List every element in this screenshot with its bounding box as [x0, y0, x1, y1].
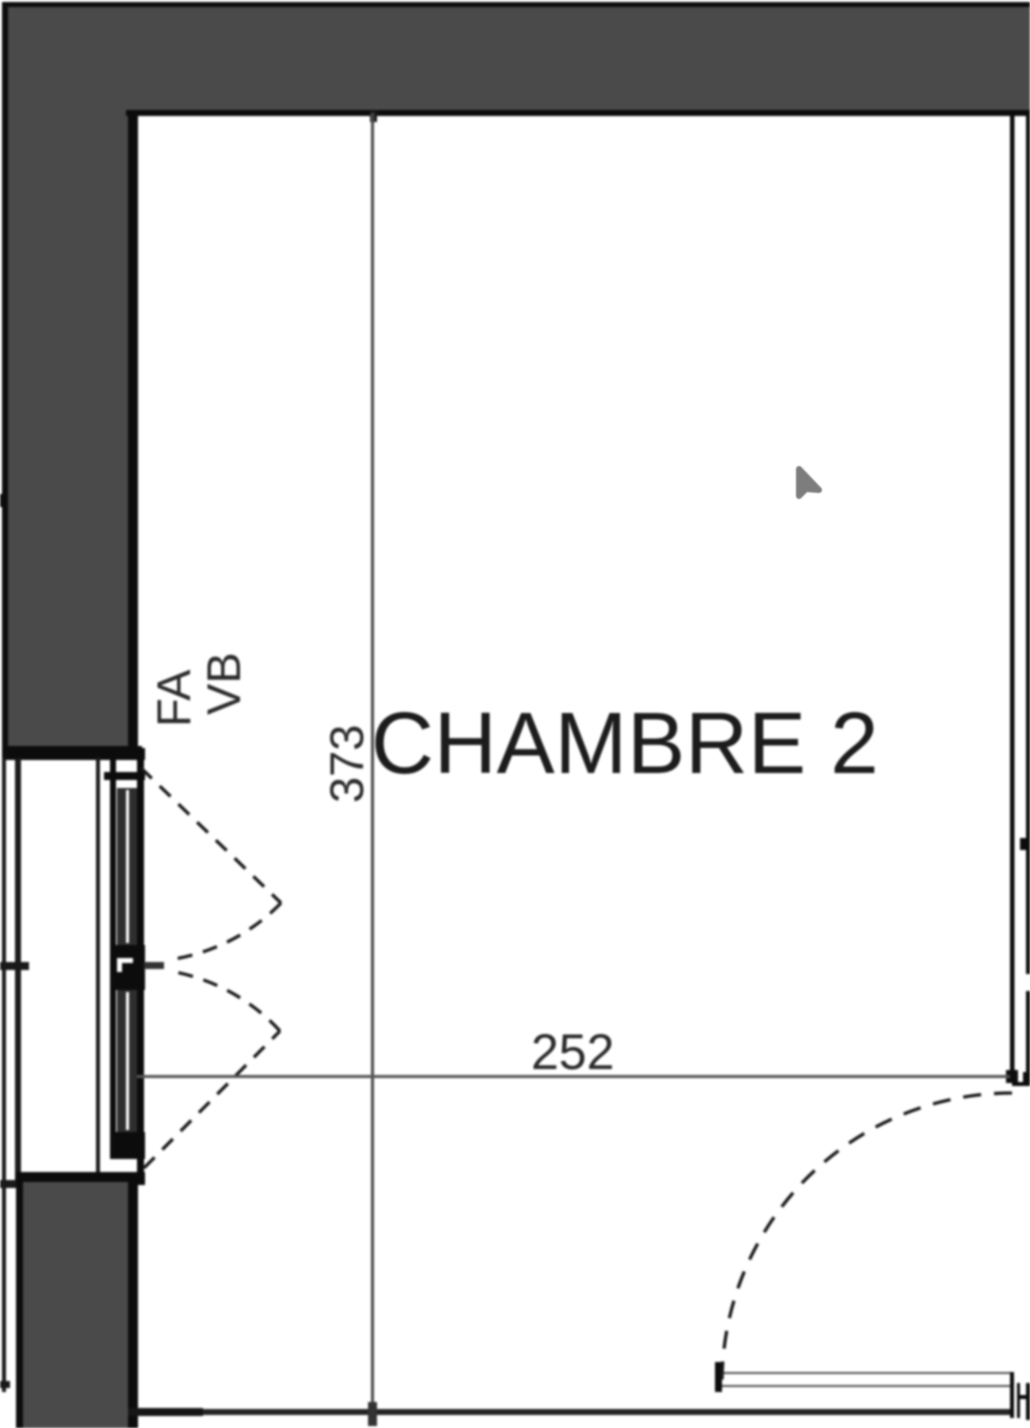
- svg-text:252: 252: [531, 1024, 614, 1080]
- svg-text:VB: VB: [197, 652, 250, 715]
- svg-text:FA: FA: [147, 669, 200, 727]
- svg-text:373: 373: [320, 725, 373, 803]
- svg-text:CHAMBRE 2: CHAMBRE 2: [371, 695, 879, 792]
